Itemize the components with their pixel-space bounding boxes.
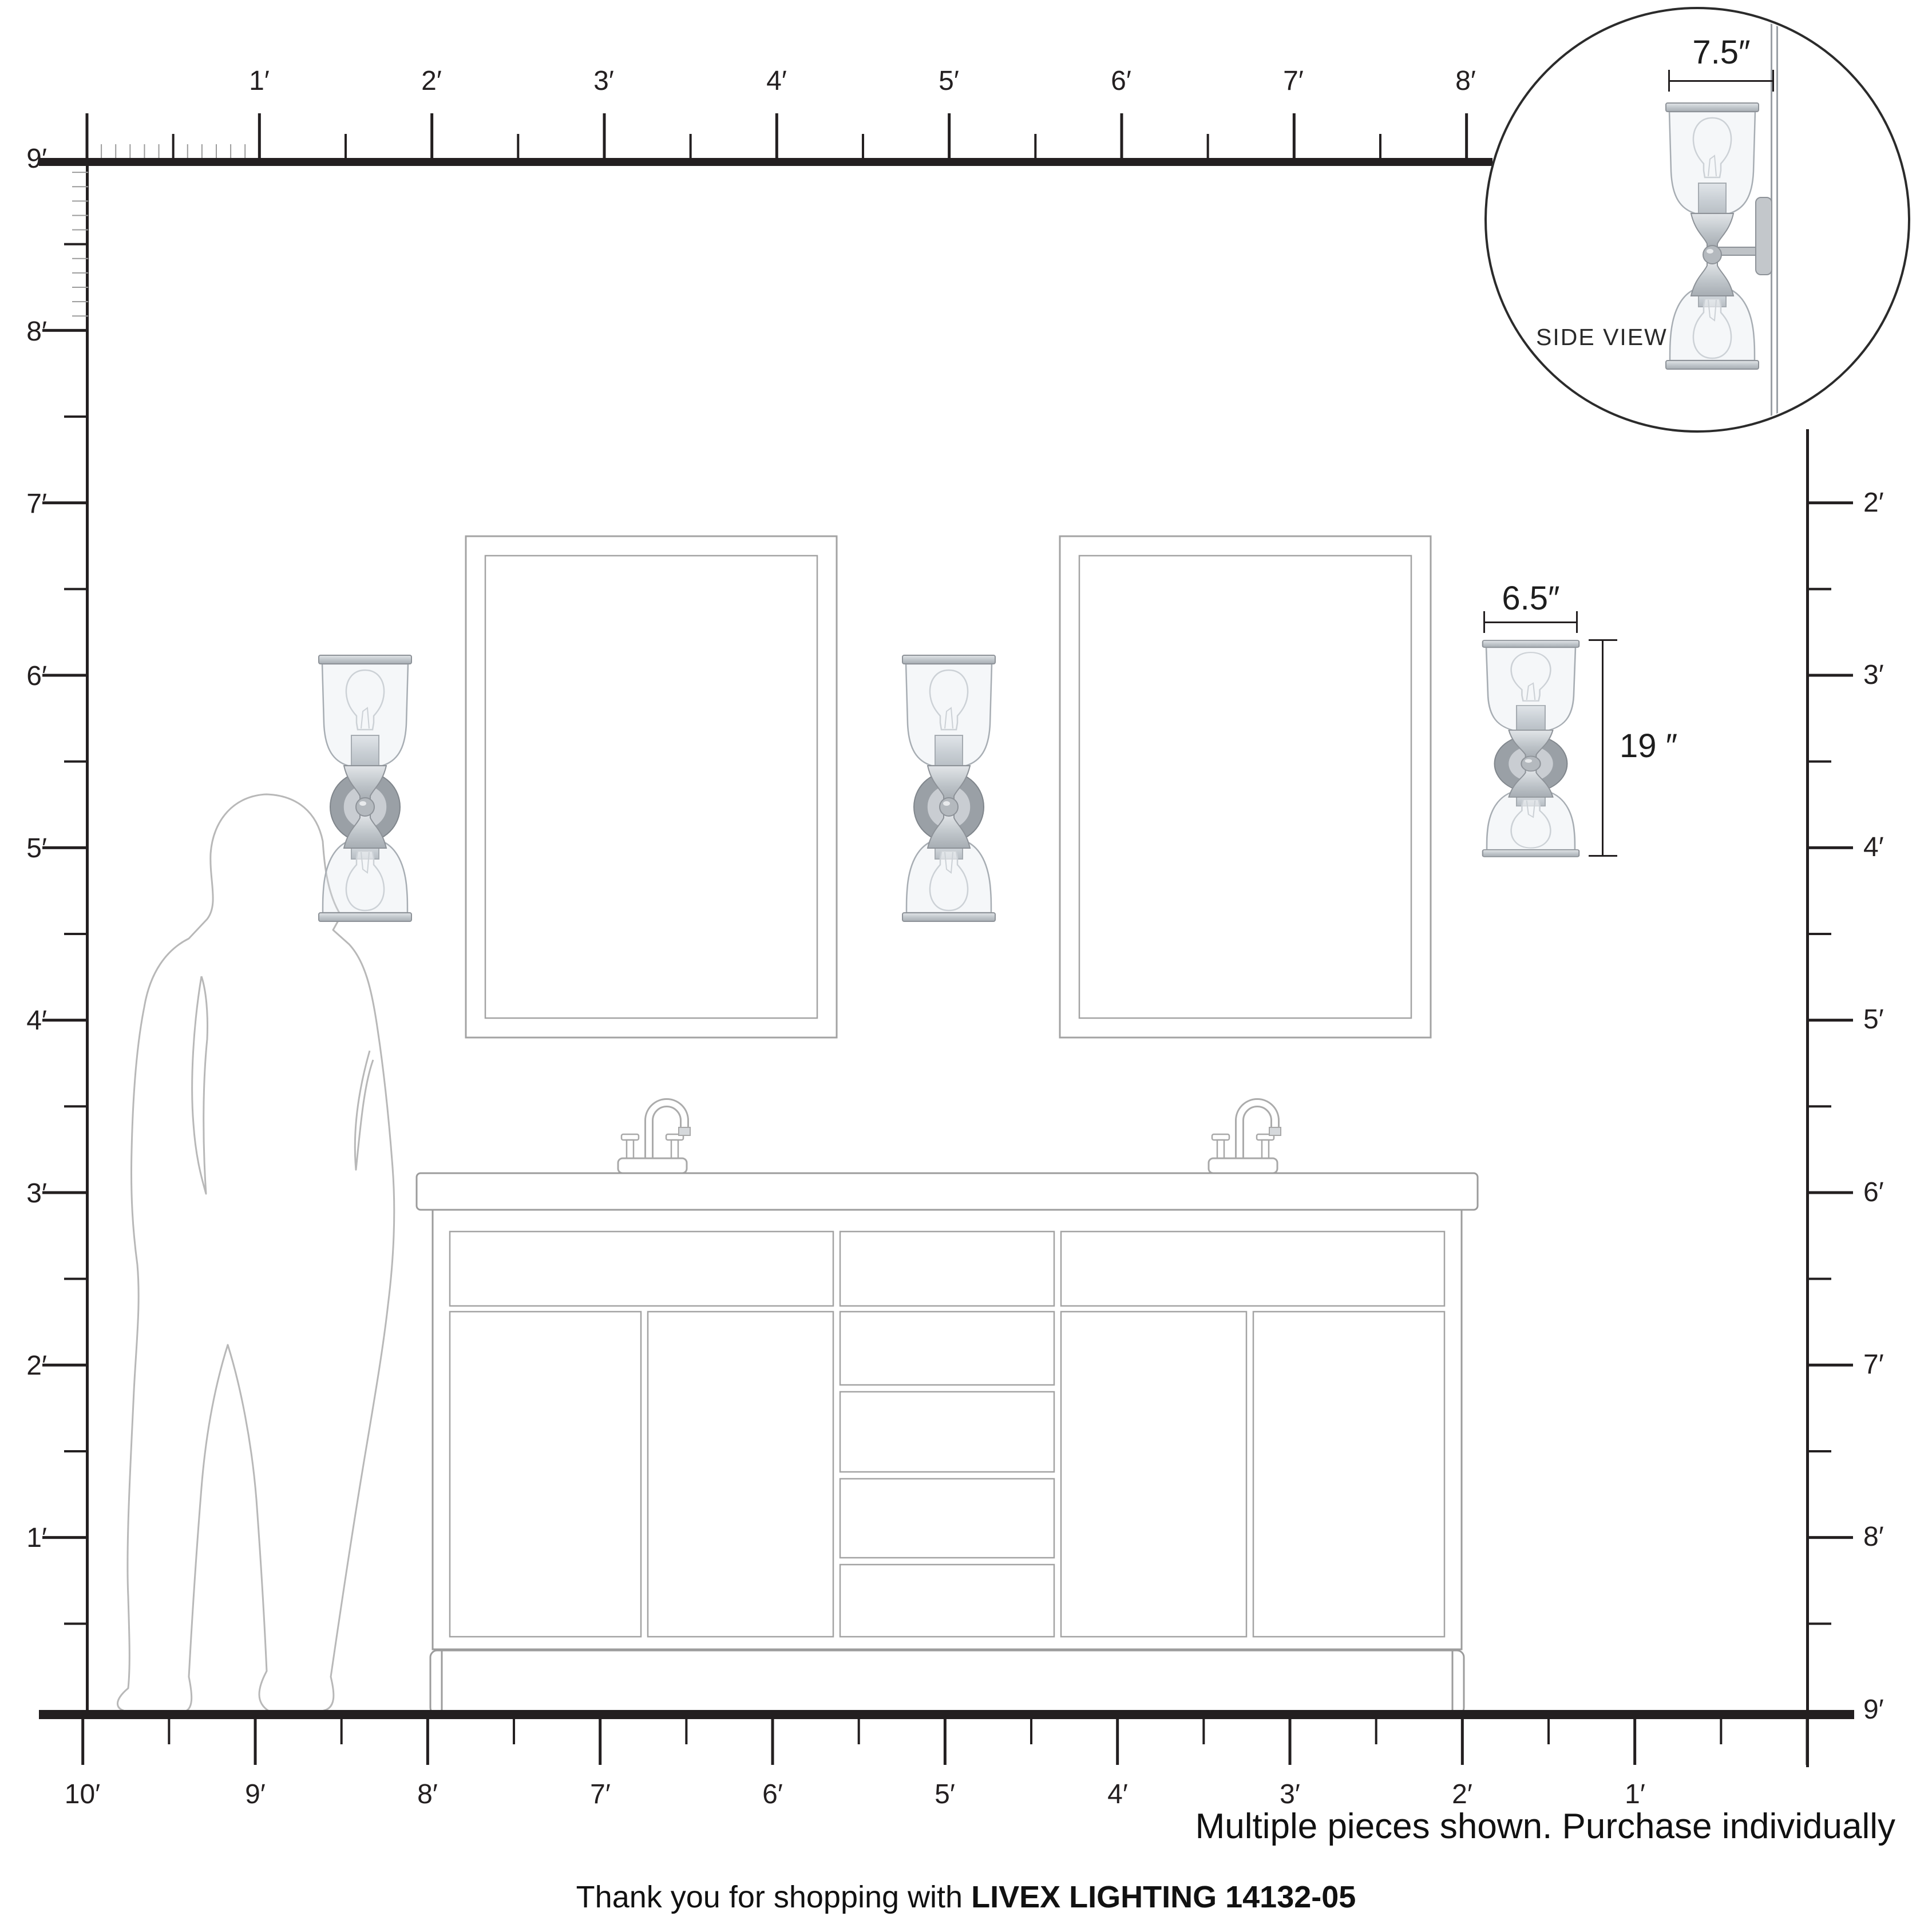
ruler-right-label: 5′ [1863,1003,1884,1037]
line-art [0,0,1932,1932]
side-view-label: SIDE VIEW [1536,324,1668,351]
ruler-top-label: 8′ [1431,64,1500,98]
ruler-top-label: 5′ [914,64,983,98]
ruler-right-label: 7′ [1863,1348,1884,1382]
fixture-depth-label: 7.5″ [1658,34,1784,71]
ruler-left-label: 6′ [0,659,47,694]
ruler-left-label: 3′ [0,1177,47,1211]
ruler-top-label: 1′ [225,64,294,98]
ruler-left-label: 4′ [0,1004,47,1038]
footer-text: Thank you for shopping with LIVEX LIGHTI… [0,1879,1932,1915]
sconce-wall-plate [1756,197,1772,275]
ruler-bottom-label: 7′ [560,1777,640,1812]
sconce-right [1483,640,1579,857]
ruler-bottom-label: 10′ [42,1777,122,1812]
footer-brand: LIVEX LIGHTING 14132-05 [971,1880,1356,1914]
wall-top-line [39,158,1492,166]
footer-prefix: Thank you for shopping with [576,1880,971,1914]
mirror-left [466,536,837,1038]
dimension-diagram: 1′ 2′ 3′ 4′ 5′ 6′ 7′ 8′ 9′ 8′ 7′ 6′ 5′ 4… [0,0,1932,1932]
person-silhouette [117,794,394,1712]
ruler-left-label: 5′ [0,832,47,866]
ruler-left-label: 7′ [0,487,47,521]
faucet-left [618,1103,690,1173]
ruler-bottom-label: 4′ [1078,1777,1158,1812]
ruler-left-label: 8′ [0,315,47,349]
ruler-right-label: 9′ [1863,1693,1884,1727]
sconce-middle [902,655,995,921]
ruler-right-label: 3′ [1863,658,1884,692]
ruler-bottom-label: 5′ [905,1777,985,1812]
fixture-height-label: 19 ″ [1620,728,1677,765]
wall-right-line [1806,429,1809,1767]
height-dimension-marker [1589,639,1617,857]
floor-line [39,1710,1854,1719]
mirror-right [1060,536,1431,1038]
ruler-top-label: 2′ [397,64,466,98]
ruler-right-label: 8′ [1863,1520,1884,1554]
ruler-bottom-label: 9′ [215,1777,295,1812]
ruler-left-label: 2′ [0,1349,47,1383]
ruler-right-label: 4′ [1863,830,1884,865]
sconce-arm [1717,247,1760,255]
ruler-top-label: 3′ [569,64,638,98]
ruler-top-label: 7′ [1259,64,1328,98]
ruler-left-label: 9′ [0,142,47,176]
ruler-top-label: 6′ [1087,64,1155,98]
ruler-top-label: 4′ [742,64,811,98]
ruler-left-label: 1′ [0,1521,47,1555]
fixture-width-label: 6.5″ [1468,580,1594,617]
sconce-left [319,655,411,921]
ruler-right-label: 6′ [1863,1175,1884,1210]
ruler-bottom-label: 8′ [387,1777,468,1812]
ruler-bottom-label: 6′ [733,1777,813,1812]
faucet-right [1209,1103,1281,1173]
purchase-note: Multiple pieces shown. Purchase individu… [1195,1806,1895,1847]
vanity-cabinet [417,1173,1478,1715]
ruler-right-label: 2′ [1863,486,1884,520]
